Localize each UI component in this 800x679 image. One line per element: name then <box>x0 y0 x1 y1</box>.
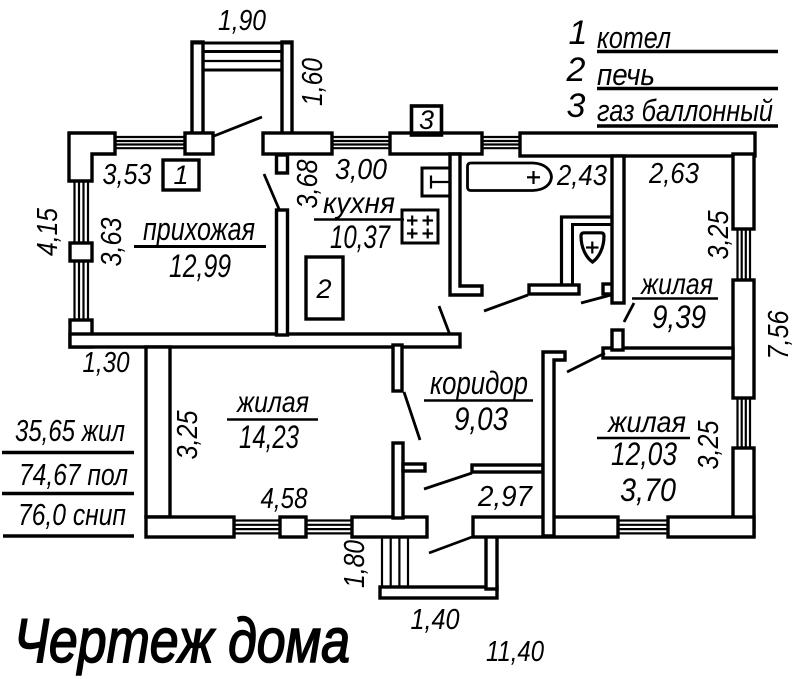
svg-text:3,25: 3,25 <box>703 210 735 260</box>
svg-text:2,63: 2,63 <box>648 158 699 190</box>
svg-text:газ баллонный: газ баллонный <box>597 93 773 128</box>
svg-text:4,15: 4,15 <box>32 207 64 256</box>
svg-text:3,68: 3,68 <box>292 160 324 209</box>
svg-text:жилая: жилая <box>606 406 686 439</box>
svg-text:котел: котел <box>597 20 671 55</box>
svg-text:10,37: 10,37 <box>330 219 391 255</box>
svg-text:1,90: 1,90 <box>218 5 266 37</box>
svg-text:3,53: 3,53 <box>103 159 152 191</box>
svg-text:3,25: 3,25 <box>172 410 204 460</box>
svg-text:жилая: жилая <box>235 386 309 419</box>
svg-text:2,43: 2,43 <box>556 160 607 192</box>
svg-text:9,03: 9,03 <box>454 401 508 437</box>
svg-text:1: 1 <box>173 160 188 190</box>
svg-text:74,67 пол: 74,67 пол <box>19 457 128 492</box>
svg-text:14,23: 14,23 <box>239 419 299 455</box>
svg-text:35,65 жил: 35,65 жил <box>15 413 125 448</box>
svg-text:4,58: 4,58 <box>261 483 308 515</box>
svg-text:9,39: 9,39 <box>652 299 706 335</box>
svg-text:1,30: 1,30 <box>83 347 130 379</box>
svg-text:жилая: жилая <box>639 268 713 301</box>
svg-text:12,99: 12,99 <box>169 248 231 284</box>
svg-text:коридор: коридор <box>430 365 528 401</box>
svg-text:3: 3 <box>567 87 586 125</box>
svg-text:2,97: 2,97 <box>477 481 534 513</box>
svg-text:11,40: 11,40 <box>486 636 544 668</box>
svg-text:кухня: кухня <box>323 187 395 220</box>
svg-text:12,03: 12,03 <box>611 436 677 472</box>
svg-text:3: 3 <box>419 105 434 135</box>
svg-text:прихожая: прихожая <box>143 211 255 247</box>
svg-text:2: 2 <box>566 51 586 89</box>
svg-text:3,25: 3,25 <box>693 420 725 470</box>
svg-text:2: 2 <box>315 274 331 304</box>
svg-text:76,0 снип: 76,0 снип <box>18 497 126 532</box>
svg-text:1: 1 <box>569 14 588 52</box>
svg-text:1,60: 1,60 <box>297 58 329 106</box>
svg-text:7,56: 7,56 <box>763 310 795 360</box>
svg-text:1,80: 1,80 <box>339 540 371 588</box>
svg-text:1,40: 1,40 <box>411 604 460 636</box>
svg-text:3,00: 3,00 <box>335 154 387 186</box>
svg-text:3,63: 3,63 <box>96 218 128 267</box>
svg-text:3,70: 3,70 <box>620 472 676 508</box>
svg-text:Чертеж дома: Чертеж дома <box>14 607 350 676</box>
svg-text:печь: печь <box>597 57 655 92</box>
